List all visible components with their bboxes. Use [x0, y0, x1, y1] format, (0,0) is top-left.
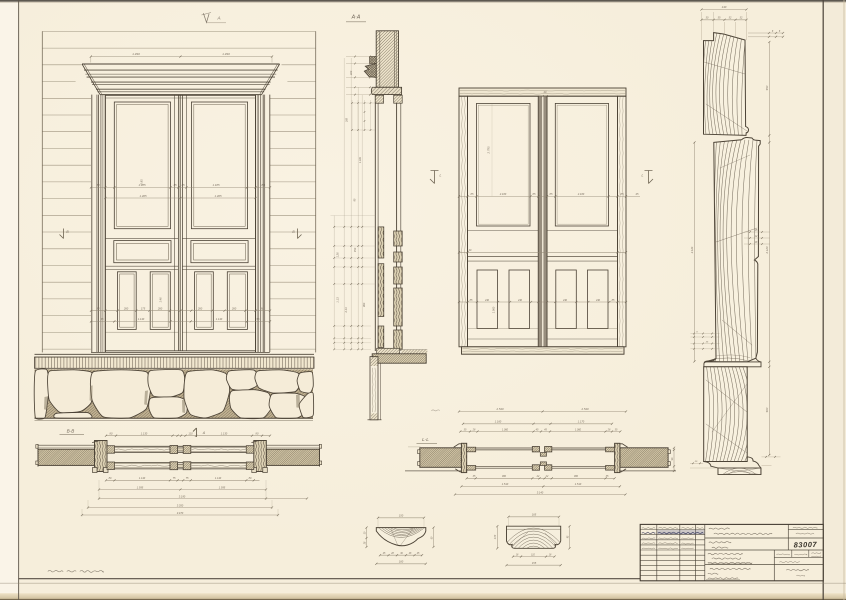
svg-text:1.060: 1.060: [502, 428, 509, 431]
svg-text:1.160: 1.160: [495, 420, 502, 424]
svg-text:1.140: 1.140: [216, 317, 223, 321]
svg-text:160: 160: [399, 560, 404, 564]
svg-text:3.350: 3.350: [177, 503, 184, 507]
svg-text:260: 260: [197, 306, 203, 310]
svg-text:1.510: 1.510: [502, 482, 509, 486]
svg-text:3.190: 3.190: [179, 494, 186, 498]
svg-text:2.180: 2.180: [577, 192, 585, 196]
svg-text:240: 240: [517, 299, 523, 302]
svg-text:83007: 83007: [794, 540, 818, 550]
svg-text:1.465: 1.465: [215, 194, 222, 198]
svg-text:1.13: 1.13: [336, 297, 340, 303]
svg-text:1.595: 1.595: [137, 485, 144, 489]
svg-text:950: 950: [765, 85, 769, 90]
svg-text:B·B: B·B: [67, 428, 75, 433]
svg-text:960: 960: [362, 302, 366, 307]
svg-text:45: 45: [181, 183, 185, 187]
svg-text:80: 80: [261, 183, 265, 187]
svg-text:2.180: 2.180: [499, 192, 507, 196]
svg-text:240: 240: [562, 299, 568, 302]
svg-text:1.140: 1.140: [139, 477, 146, 480]
svg-text:A: A: [216, 16, 220, 21]
svg-text:265: 265: [346, 117, 349, 123]
svg-text:1.185: 1.185: [213, 183, 220, 187]
svg-text:310: 310: [349, 70, 353, 75]
svg-text:1.490: 1.490: [222, 52, 230, 56]
svg-text:260: 260: [123, 306, 129, 310]
svg-text:3.140: 3.140: [537, 490, 544, 494]
svg-text:150: 150: [399, 514, 404, 518]
svg-text:1.46: 1.46: [159, 297, 163, 303]
svg-text:2.120: 2.120: [690, 246, 694, 254]
svg-text:175: 175: [141, 306, 146, 310]
svg-text:3.470: 3.470: [177, 511, 184, 515]
svg-text:1.26: 1.26: [336, 252, 340, 258]
svg-text:980: 980: [502, 475, 507, 478]
svg-text:1.140: 1.140: [215, 477, 222, 480]
svg-text:2.13: 2.13: [344, 307, 348, 314]
svg-text:1.140: 1.140: [138, 317, 145, 321]
svg-text:1.060: 1.060: [575, 428, 582, 431]
svg-text:1.130: 1.130: [221, 431, 228, 435]
svg-text:2.540: 2.540: [496, 407, 504, 411]
svg-text:900: 900: [765, 407, 769, 412]
svg-text:1.00: 1.00: [495, 534, 497, 539]
svg-text:1.130: 1.130: [141, 431, 148, 435]
svg-text:260: 260: [157, 306, 163, 310]
svg-text:155: 155: [532, 561, 537, 565]
svg-text:240: 240: [484, 299, 490, 302]
svg-text:1.170: 1.170: [578, 420, 585, 424]
svg-text:1.595: 1.595: [219, 485, 226, 489]
svg-text:1.900: 1.900: [492, 306, 496, 313]
svg-text:2.795: 2.795: [487, 146, 491, 154]
svg-text:L·L: L·L: [422, 437, 429, 442]
svg-text:L: L: [440, 174, 442, 178]
svg-text:2.85: 2.85: [140, 179, 144, 186]
svg-text:1.420: 1.420: [359, 156, 362, 163]
svg-text:L: L: [642, 174, 644, 178]
svg-text:1.465: 1.465: [140, 194, 147, 198]
svg-text:A·A: A·A: [351, 15, 361, 21]
svg-text:260: 260: [231, 306, 237, 310]
svg-text:980: 980: [574, 475, 579, 478]
svg-text:1.510: 1.510: [575, 482, 582, 486]
svg-text:45: 45: [173, 183, 177, 187]
svg-text:150: 150: [353, 247, 357, 252]
svg-text:140: 140: [722, 5, 727, 9]
svg-text:2.120: 2.120: [765, 246, 769, 254]
svg-text:1.490: 1.490: [132, 52, 140, 56]
svg-text:2.540: 2.540: [581, 407, 589, 411]
svg-text:110: 110: [188, 431, 193, 435]
svg-text:80: 80: [96, 183, 100, 187]
svg-text:240: 240: [595, 299, 601, 302]
svg-text:165: 165: [532, 513, 537, 517]
svg-text:A: A: [202, 431, 206, 435]
